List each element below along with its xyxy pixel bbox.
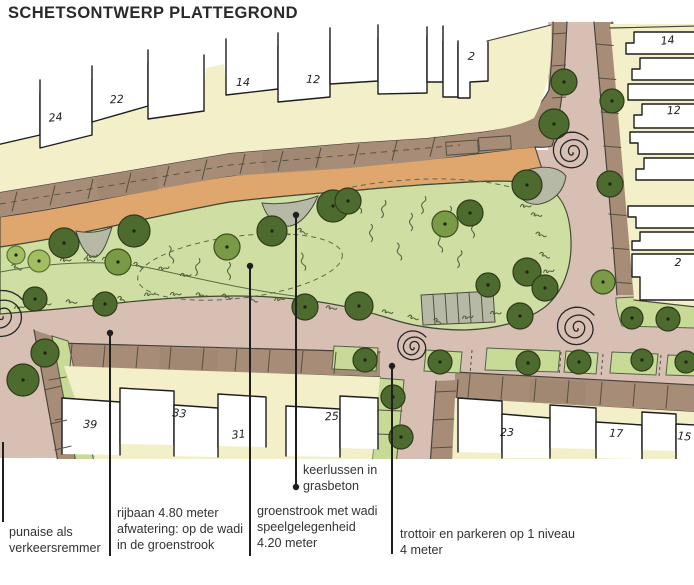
tree-icon [532, 275, 558, 301]
label-rijbaan: rijbaan 4.80 meter afwatering: op de wad… [117, 505, 243, 553]
tree-icon [214, 234, 240, 260]
tree-icon [432, 211, 458, 237]
tree-icon [28, 250, 50, 272]
tree-icon [621, 307, 643, 329]
house-number: 2 [467, 50, 475, 64]
tree-icon [516, 351, 540, 375]
label-groenstrook: groenstrook met wadi speelgelegenheid 4.… [257, 503, 377, 551]
tree-icon [539, 109, 569, 139]
house-number: 23 [500, 426, 514, 439]
house-number: 12 [666, 104, 681, 118]
sketch-plan-page: SCHETSONTWERP PLATTEGROND [0, 0, 694, 585]
tree-icon [567, 350, 591, 374]
tree-icon [656, 307, 680, 331]
house-number: 14 [236, 76, 250, 89]
tree-icon [93, 292, 117, 316]
label-trottoir: trottoir en parkeren op 1 niveau 4 meter [400, 526, 575, 558]
house-number: 39 [83, 418, 98, 432]
tree-icon [31, 339, 59, 367]
tree-icon [7, 364, 39, 396]
leader-dot [247, 263, 253, 269]
house-number: 25 [324, 410, 339, 424]
tree-icon [512, 170, 542, 200]
house-number: 14 [660, 33, 675, 47]
tree-icon [49, 228, 79, 258]
tree-icon [597, 171, 623, 197]
tree-icon [105, 249, 131, 275]
leader-dot [293, 212, 299, 218]
tree-icon [591, 270, 615, 294]
tree-icon [631, 349, 653, 371]
leader-dot [293, 484, 299, 490]
house-number: 33 [172, 406, 187, 420]
leader-dot [389, 363, 395, 369]
house-number: 31 [231, 427, 246, 441]
house-number: 2 [675, 256, 682, 269]
house-number: 15 [677, 429, 692, 443]
label-keerlussen: keerlussen in grasbeton [303, 462, 377, 494]
label-punaise: punaise als verkeersremmer [9, 524, 101, 556]
tree-icon [476, 273, 500, 297]
tree-icon [507, 303, 533, 329]
house-number: 17 [609, 427, 624, 441]
tree-icon [257, 216, 287, 246]
leader-dot [107, 330, 113, 336]
tree-icon [345, 292, 373, 320]
tree-icon [335, 188, 361, 214]
tree-icon [600, 89, 624, 113]
tree-icon [118, 215, 150, 247]
house-number: 24 [48, 110, 63, 124]
tree-icon [7, 246, 25, 264]
house-number: 22 [109, 93, 124, 107]
site-plan-drawing: 2422141221412239333125231715 [0, 0, 694, 585]
tree-icon [353, 348, 377, 372]
tree-icon [428, 350, 452, 374]
house-number: 12 [306, 73, 321, 87]
tree-icon [675, 351, 694, 373]
tree-icon [457, 200, 483, 226]
tree-icon [23, 287, 47, 311]
tree-icon [551, 69, 577, 95]
